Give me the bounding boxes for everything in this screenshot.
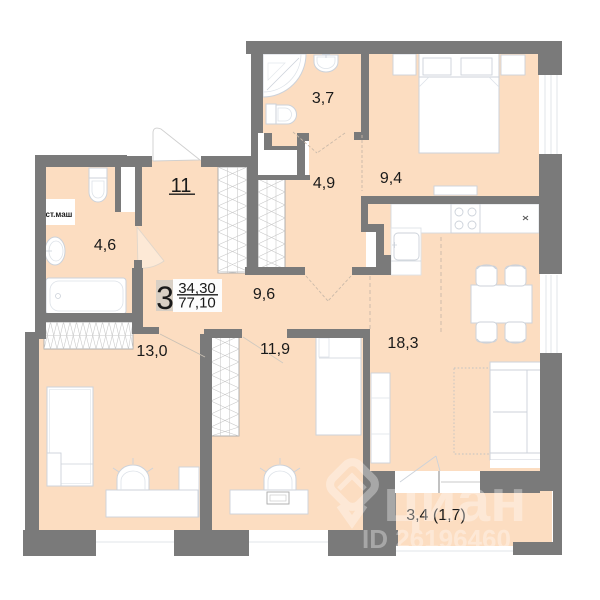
svg-text:13,0: 13,0 — [136, 343, 167, 360]
svg-text:77,10: 77,10 — [178, 295, 216, 312]
svg-text:ст.маш: ст.маш — [46, 210, 73, 219]
svg-text:ID 26196460: ID 26196460 — [362, 524, 511, 554]
svg-text:9,6: 9,6 — [253, 286, 275, 303]
svg-text:18,3: 18,3 — [387, 335, 418, 352]
svg-text:3,7: 3,7 — [312, 90, 334, 107]
svg-text:4,6: 4,6 — [94, 237, 116, 254]
svg-text:11,9: 11,9 — [260, 341, 290, 358]
svg-text:4,9: 4,9 — [313, 175, 335, 192]
svg-text:3: 3 — [156, 280, 174, 316]
svg-text:9,4: 9,4 — [380, 170, 402, 187]
